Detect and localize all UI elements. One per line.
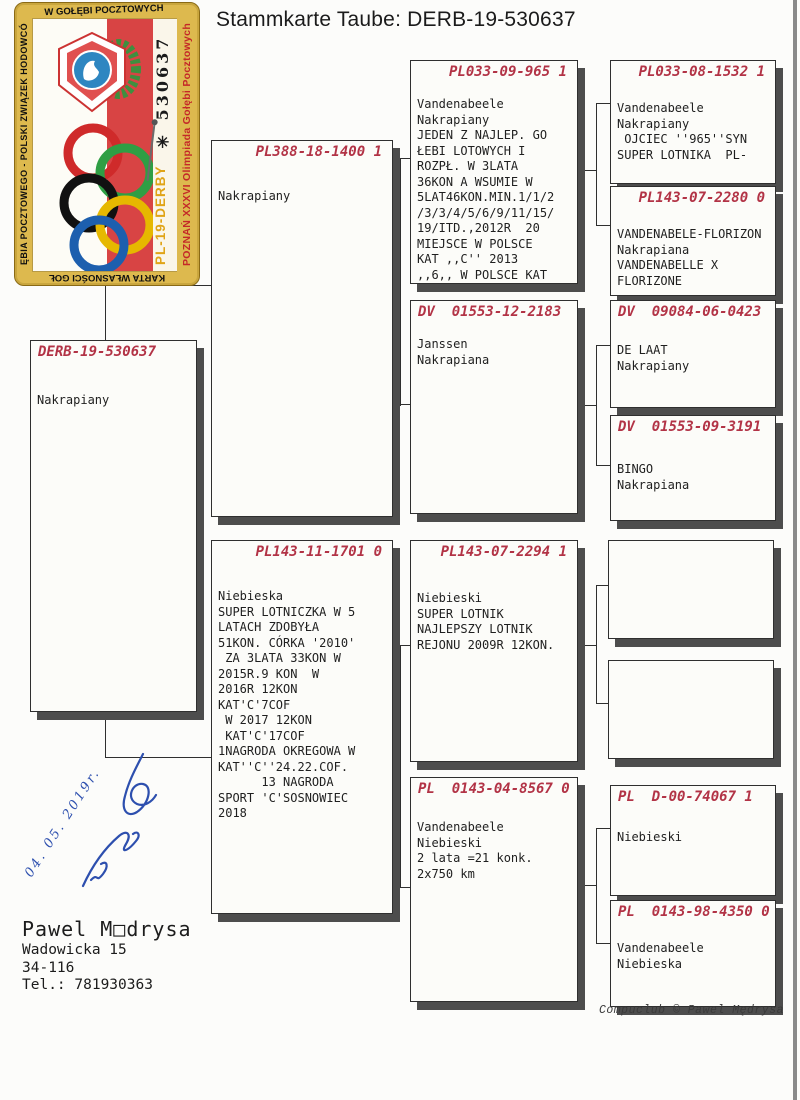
owner-postal: 34-116: [22, 960, 192, 978]
owner-phone: Tel.: 781930363: [22, 977, 192, 995]
ring-id: PL D-00-74067 1: [611, 789, 775, 805]
pedigree-box-fmf: DV 09084-06-0423 DE LAAT Nakrapiany: [610, 300, 776, 408]
pedigree-box-ffm: PL143-07-2280 0 VANDENABELE-FLORIZON Nak…: [610, 186, 776, 296]
ring-id: DV 01553-12-2183: [411, 304, 577, 320]
connector-line: [596, 345, 611, 346]
connector-line: [596, 828, 597, 944]
ring-number-vertical: ✳ 530637: [153, 23, 177, 163]
pedigree-box-mmm: PL 0143-98-4350 0 Vandenabeele Niebieska: [610, 900, 776, 1007]
connector-line: [596, 828, 611, 829]
stamp-border-top-text: W GOŁĘBI POCZTOWYCH: [39, 3, 169, 19]
pedigree-box-mf: PL143-07-2294 1 Niebieski SUPER LOTNIK N…: [410, 540, 578, 762]
connector-line: [596, 103, 611, 104]
scan-edge-line: [793, 0, 797, 1100]
ring-id: PL 0143-98-4350 0: [611, 904, 775, 920]
olympic-rings-icon: [41, 121, 153, 271]
derby-label: PL-19-DERBY: [153, 163, 177, 267]
olympiad-band-text: POZNAŃ XXXVI Olimpiada Gołębi Pocztowych: [177, 5, 197, 283]
signature: [25, 752, 185, 902]
pigeon-notes: Janssen Nakrapiana: [417, 337, 576, 368]
connector-line: [578, 885, 597, 886]
connector-line: [596, 465, 611, 466]
pedigree-card-page: Stammkarte Taube: DERB-19-530637 W GOŁĘB…: [0, 0, 800, 1100]
ring-id: PL 0143-04-8567 0: [411, 781, 577, 797]
connector-line: [596, 345, 597, 466]
pigeon-notes: Nakrapiany: [218, 189, 391, 205]
ring-id: DV 01553-09-3191: [611, 419, 775, 435]
connector-line: [578, 405, 597, 406]
ring-id: PL033-09-965 1: [411, 64, 577, 80]
pzhgp-crest: [47, 29, 147, 129]
ring-id: PL143-07-2280 0: [611, 190, 775, 206]
pedigree-box-mm: PL 0143-04-8567 0 Vandenabeele Niebieski…: [410, 777, 578, 1002]
pedigree-box-ff: PL033-09-965 1 Vandenabeele Nakrapiany J…: [410, 60, 578, 284]
connector-line: [596, 103, 597, 226]
stamp-flag-panel: [32, 18, 154, 272]
connector-line: [596, 225, 611, 226]
connector-line: [596, 585, 597, 704]
ring-id: PL033-08-1532 1: [611, 64, 775, 80]
pedigree-box-subject: DERB-19-530637 Nakrapiany: [30, 340, 197, 712]
connector-line: [393, 158, 411, 159]
ring-id: DERB-19-530637: [31, 344, 196, 360]
pigeon-notes: Niebieski: [617, 830, 774, 846]
owner-name: Pawel M□drysa: [22, 916, 192, 942]
pigeon-notes: DE LAAT Nakrapiany: [617, 343, 774, 374]
pigeon-notes: VANDENABELE-FLORIZON Nakrapiana VANDENAB…: [617, 227, 774, 289]
pigeon-notes: Nakrapiany: [37, 393, 195, 409]
software-credit: Compuclub © Pawel Mędrysa: [599, 1004, 784, 1017]
ring-id: PL143-07-2294 1: [411, 544, 577, 560]
pedigree-box-mother: PL143-11-1701 0 Niebieska SUPER LOTNICZK…: [211, 540, 393, 914]
connector-line: [400, 645, 401, 888]
pigeon-notes: Vandenabeele Niebieski 2 lata =21 konk. …: [417, 820, 576, 882]
stamp-number-strip: ✳ 530637 PL-19-DERBY: [153, 18, 177, 272]
pedigree-box-fmm: DV 01553-09-3191 BINGO Nakrapiana: [610, 415, 776, 521]
connector-line: [578, 645, 597, 646]
pigeon-notes: Vandenabeele Niebieska: [617, 941, 774, 972]
ring-id: PL143-11-1701 0: [212, 544, 392, 560]
pigeon-notes: Vandenabeele Nakrapiany JEDEN Z NAJLEP. …: [417, 97, 576, 283]
owner-street: Wadowicka 15: [22, 942, 192, 960]
ownership-stamp: W GOŁĘBI POCZTOWYCH ĘBIA POCZTOWEGO - PO…: [14, 2, 200, 286]
pigeon-notes: BINGO Nakrapiana: [617, 462, 774, 493]
pedigree-box-fff: PL033-08-1532 1 Vandenabeele Nakrapiany …: [610, 60, 776, 184]
ring-id: DV 09084-06-0423: [611, 304, 775, 320]
ring-id: PL388-18-1400 1: [212, 144, 392, 160]
connector-line: [393, 645, 411, 646]
owner-block: Pawel M□drysa Wadowicka 15 34-116 Tel.: …: [22, 916, 192, 995]
pigeon-notes: Niebieska SUPER LOTNICZKA W 5 LATACH ZDO…: [218, 589, 391, 822]
pedigree-box-father: PL388-18-1400 1 Nakrapiany: [211, 140, 393, 517]
pedigree-box-mff: [608, 540, 774, 639]
pedigree-box-fm: DV 01553-12-2183 Janssen Nakrapiana: [410, 300, 578, 514]
connector-line: [596, 943, 611, 944]
stamp-border-left-text: ĘBIA POCZTOWEGO - POLSKI ZWIĄZEK HODOWCÓ: [17, 17, 31, 271]
pigeon-notes: Vandenabeele Nakrapiany OJCIEC ''965''SY…: [617, 101, 774, 163]
connector-line: [105, 710, 106, 758]
page-title: Stammkarte Taube: DERB-19-530637: [216, 8, 576, 32]
connector-line: [105, 285, 106, 341]
connector-line: [400, 158, 401, 406]
pigeon-notes: Niebieski SUPER LOTNIK NAJLEPSZY LOTNIK …: [417, 591, 576, 653]
stamp-border-bottom-text: KARTA WŁASNOŚCI GOŁ: [45, 272, 169, 283]
pedigree-box-mfm: [608, 660, 774, 759]
pedigree-box-mmf: PL D-00-74067 1 Niebieski: [610, 785, 776, 896]
connector-line: [578, 170, 597, 171]
